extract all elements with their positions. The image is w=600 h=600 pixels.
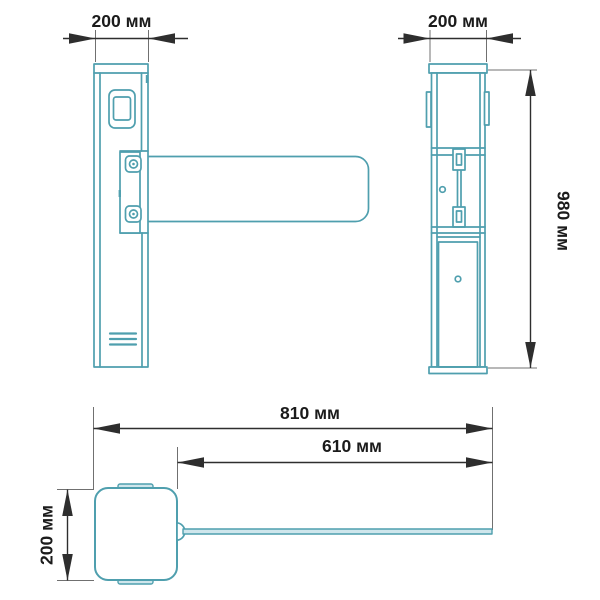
drawing-svg: 200 мм bbox=[0, 0, 600, 600]
arrowhead-icon bbox=[62, 490, 73, 517]
side-tab bbox=[485, 92, 490, 125]
dimension-label: 200 мм bbox=[428, 11, 488, 31]
column-footprint bbox=[95, 488, 177, 580]
hinge-clamp bbox=[453, 149, 465, 170]
arrowhead-icon bbox=[466, 423, 493, 434]
side-column bbox=[427, 64, 490, 374]
arrowhead-icon bbox=[404, 33, 431, 44]
dimension-label: 200 мм bbox=[37, 505, 57, 565]
dimension-label: 200 мм bbox=[92, 11, 152, 31]
column-cap bbox=[429, 64, 487, 73]
technical-drawing: 200 мм bbox=[0, 0, 600, 600]
depth-dimension: 200 мм bbox=[37, 490, 94, 581]
side-notch bbox=[146, 75, 149, 83]
dimension-label: 980 мм bbox=[553, 191, 573, 251]
arrowhead-icon bbox=[62, 554, 73, 581]
arrowhead-icon bbox=[525, 342, 536, 368]
arrowhead-icon bbox=[69, 33, 96, 44]
side-view: 200 мм bbox=[398, 11, 573, 374]
column-top-view bbox=[95, 484, 492, 584]
hinge-rod bbox=[458, 168, 462, 209]
top-view: 810 мм 610 мм 200 мм bbox=[37, 403, 493, 584]
height-dimension: 980 мм bbox=[488, 70, 573, 368]
hinge-clamp bbox=[453, 207, 465, 227]
hinge-pin-center bbox=[132, 163, 135, 166]
arrowhead-icon bbox=[466, 457, 493, 468]
dimension-label: 810 мм bbox=[280, 403, 340, 423]
barrier-arm bbox=[140, 157, 369, 222]
swing-arm-front bbox=[140, 157, 369, 222]
column-base bbox=[429, 367, 487, 374]
barrier-arm-top-view bbox=[183, 529, 492, 534]
dimension-label: 610 мм bbox=[322, 436, 382, 456]
side-width-dimension: 200 мм bbox=[398, 11, 521, 62]
side-tab bbox=[427, 92, 432, 127]
front-column bbox=[94, 64, 149, 367]
arrowhead-icon bbox=[178, 457, 205, 468]
plate-notch bbox=[119, 190, 121, 197]
arm-length-dimension: 610 мм bbox=[178, 436, 493, 489]
arrowhead-icon bbox=[525, 70, 536, 96]
front-view: 200 мм bbox=[63, 11, 369, 367]
hinge-pin-center bbox=[132, 213, 135, 216]
arrowhead-icon bbox=[94, 423, 121, 434]
arrowhead-icon bbox=[487, 33, 514, 44]
arrowhead-icon bbox=[149, 33, 176, 44]
hinge-plate bbox=[119, 152, 141, 233]
front-width-dimension: 200 мм bbox=[63, 11, 188, 62]
